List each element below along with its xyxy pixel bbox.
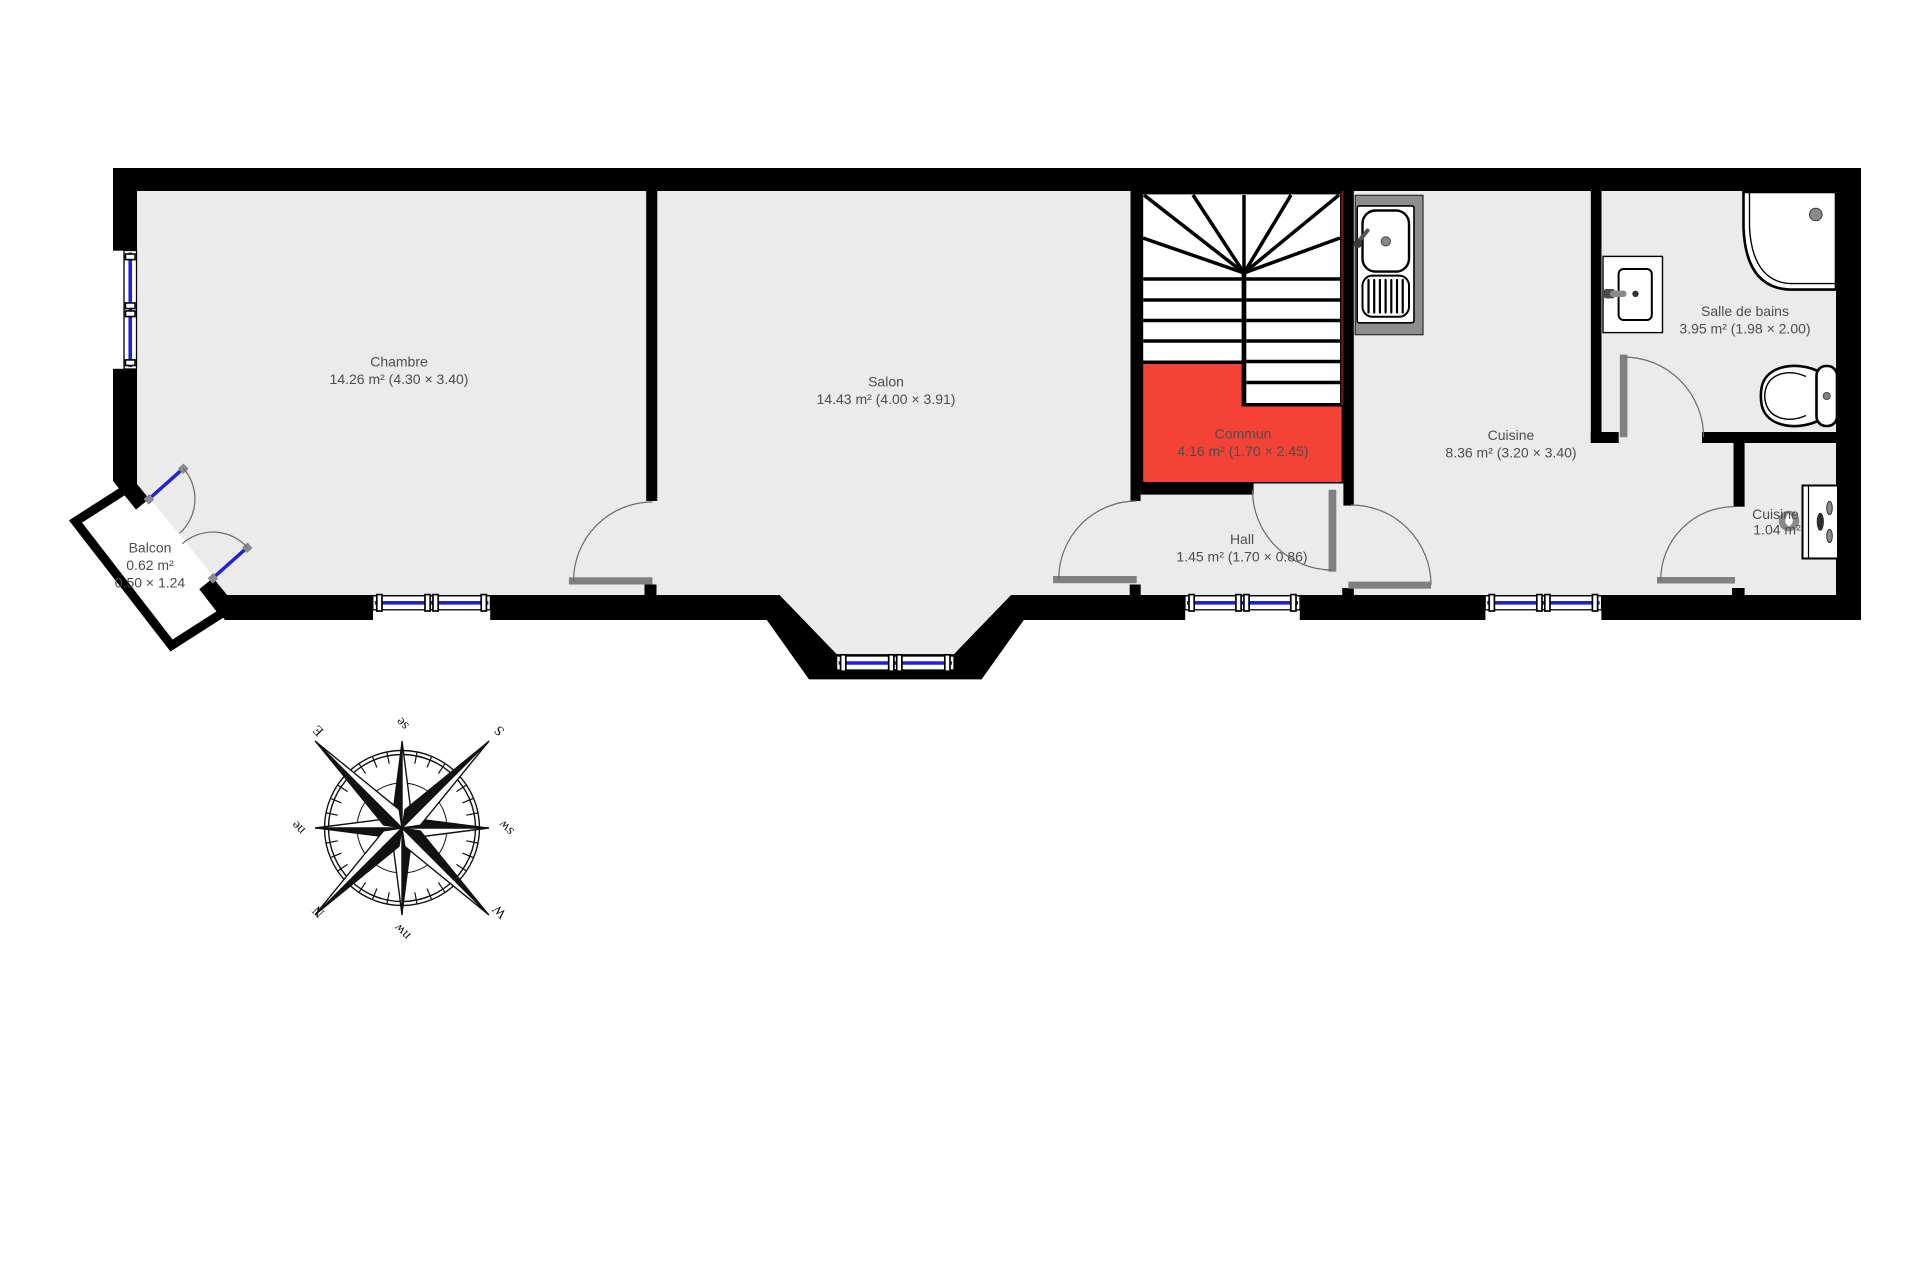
svg-text:Chambre: Chambre <box>370 354 428 370</box>
svg-text:8.36 m² (3.20 × 3.40): 8.36 m² (3.20 × 3.40) <box>1445 445 1576 461</box>
svg-text:Cuisine: Cuisine <box>1752 506 1799 522</box>
svg-text:14.43 m² (4.00 × 3.91): 14.43 m² (4.00 × 3.91) <box>817 391 956 407</box>
svg-text:Commun: Commun <box>1215 426 1272 442</box>
svg-text:Cuisine: Cuisine <box>1488 427 1535 443</box>
svg-text:Hall: Hall <box>1230 531 1254 547</box>
svg-text:0.62 m²: 0.62 m² <box>126 557 174 573</box>
svg-text:Balcon: Balcon <box>129 540 172 556</box>
svg-text:1.04 m²: 1.04 m² <box>1753 522 1801 538</box>
svg-text:14.26 m² (4.30 × 3.40): 14.26 m² (4.30 × 3.40) <box>330 371 469 387</box>
svg-text:3.95 m² (1.98 × 2.00): 3.95 m² (1.98 × 2.00) <box>1679 321 1810 337</box>
svg-text:4.16 m² (1.70 × 2.45): 4.16 m² (1.70 × 2.45) <box>1177 443 1308 459</box>
svg-text:Salle de bains: Salle de bains <box>1701 303 1789 319</box>
svg-text:Salon: Salon <box>868 374 904 390</box>
svg-text:0.50 × 1.24: 0.50 × 1.24 <box>115 575 186 591</box>
svg-text:1.45 m² (1.70 × 0.86): 1.45 m² (1.70 × 0.86) <box>1176 549 1307 565</box>
